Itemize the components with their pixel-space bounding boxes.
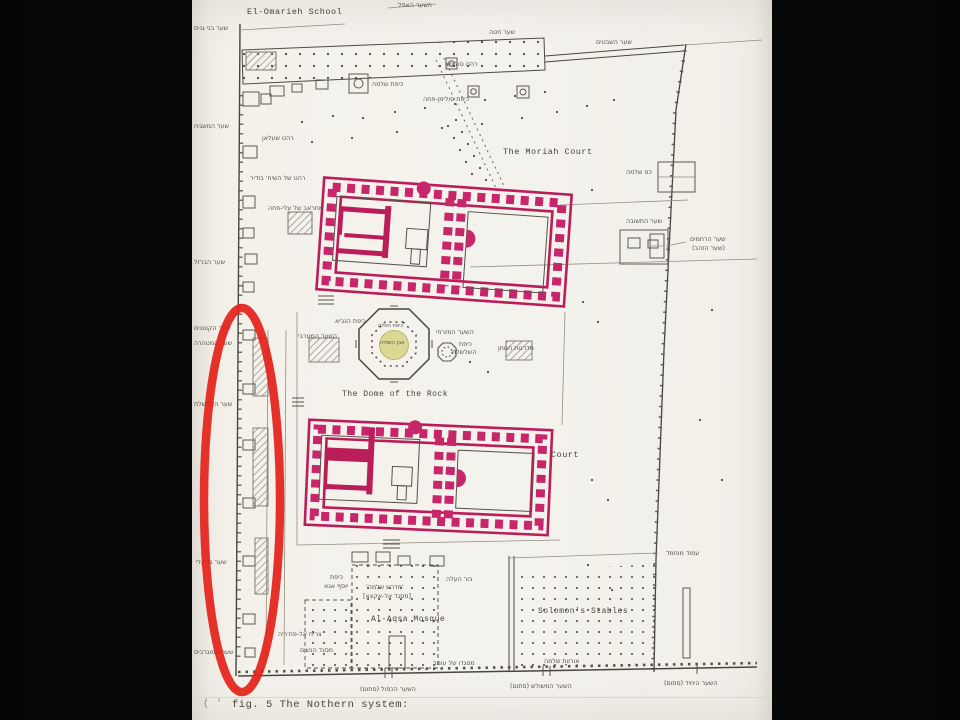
annotation-layer (0, 0, 960, 720)
slide-stage: El-Omarieh SchoolThe Moriah CourtThe Dom… (0, 0, 960, 720)
red-ellipse-annotation (204, 308, 280, 692)
